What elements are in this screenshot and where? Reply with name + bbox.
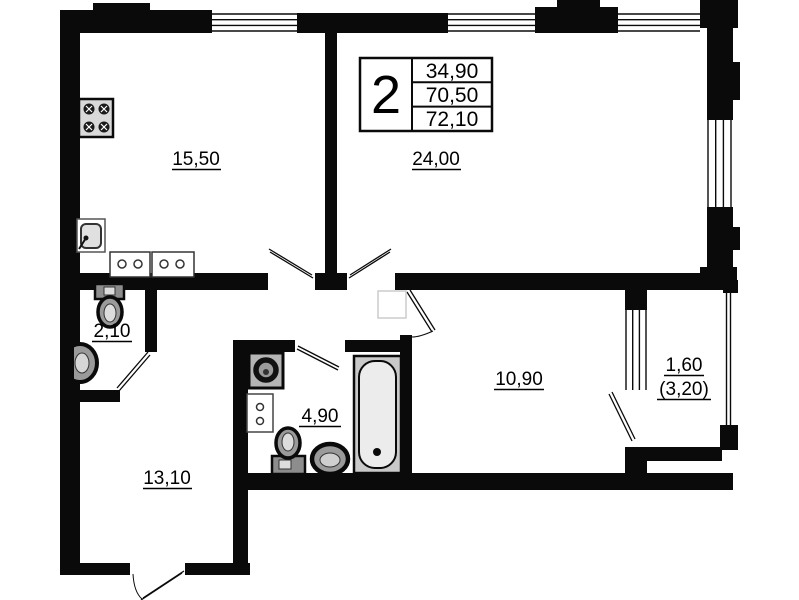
top-pier — [535, 7, 618, 33]
title-block: 2 34,90 70,50 72,10 — [360, 58, 492, 131]
balcony-area-label: 1,60 — [666, 355, 703, 376]
mid-wall-b — [315, 273, 347, 290]
living-room-window-2 — [618, 14, 700, 31]
bathroom-round-sink-icon — [312, 444, 348, 474]
wc-area-label: 2,10 — [94, 321, 131, 342]
living-room-window-1 — [448, 14, 535, 31]
room-count: 2 — [371, 65, 401, 125]
balcony-left-stub — [625, 288, 647, 310]
right-wall-bump-2 — [733, 227, 740, 250]
living-room-door — [349, 249, 391, 278]
right-wall-upper — [707, 28, 733, 120]
entry-door — [133, 571, 184, 600]
faint-box — [378, 291, 406, 318]
floor-plan-page: 2 34,90 70,50 72,10 15,50 24,00 2,10 13,… — [0, 0, 799, 600]
hall-bottom-wall-left — [60, 563, 130, 575]
washing-machine-icon — [249, 353, 283, 388]
right-wall-mid — [707, 207, 733, 269]
kitchen-window — [212, 14, 297, 31]
bottom-wall-main — [233, 473, 733, 490]
top-wall-middle — [297, 13, 448, 33]
balcony-door — [609, 392, 635, 441]
bathroom-area-label: 4,90 — [302, 406, 339, 427]
bathtub-icon — [354, 356, 401, 473]
top-wall-kitchen — [60, 10, 212, 33]
kitchen-cabinets-icon — [110, 252, 194, 277]
wc-corner-sink-icon — [60, 342, 97, 384]
bedroom-door — [407, 290, 435, 337]
right-wall-bump-1 — [733, 62, 740, 100]
bath-top-wall-left — [246, 340, 295, 352]
balcony-bottom-wall — [647, 447, 722, 461]
bedroom-area-label: 10,90 — [495, 369, 543, 390]
balcony-top-right-block — [723, 280, 738, 293]
left-wall — [60, 10, 80, 575]
pilaster-top-left — [93, 3, 150, 13]
title-row-1: 34,90 — [426, 60, 479, 83]
hall-bath-wall — [233, 340, 248, 575]
kitchen-area-label: 15,50 — [172, 149, 220, 170]
wc-right-wall — [145, 288, 157, 352]
bedroom-balcony-window — [626, 310, 646, 390]
living-room-area-label: 24,00 — [412, 149, 460, 170]
title-row-3: 72,10 — [426, 108, 479, 131]
hall-bottom-wall-right — [185, 563, 250, 575]
wc-door — [117, 352, 150, 391]
bathroom-cabinet-icon — [247, 394, 273, 432]
bathroom-door — [297, 346, 339, 370]
balcony-bottom-right-block — [720, 425, 738, 450]
hallway-area-label: 13,10 — [143, 468, 191, 489]
top-right-corner — [700, 0, 738, 28]
mid-wall-c — [395, 273, 737, 290]
balcony-door-pier — [625, 447, 647, 473]
living-room-side-window — [708, 120, 731, 207]
bathroom-toilet-icon — [272, 428, 305, 474]
kitchen-living-divider — [325, 33, 337, 273]
top-pier-bump — [557, 0, 600, 8]
floor-plan-drawing: 2 34,90 70,50 72,10 15,50 24,00 2,10 13,… — [0, 0, 799, 600]
stove-icon — [79, 99, 113, 137]
balcony-area-label-secondary: (3,20) — [659, 379, 709, 400]
wc-bottom-wall — [60, 390, 120, 402]
kitchen-sink-icon — [77, 219, 105, 252]
kitchen-door — [269, 249, 313, 278]
balcony-glazing — [727, 293, 731, 427]
title-row-2: 70,50 — [426, 84, 479, 107]
